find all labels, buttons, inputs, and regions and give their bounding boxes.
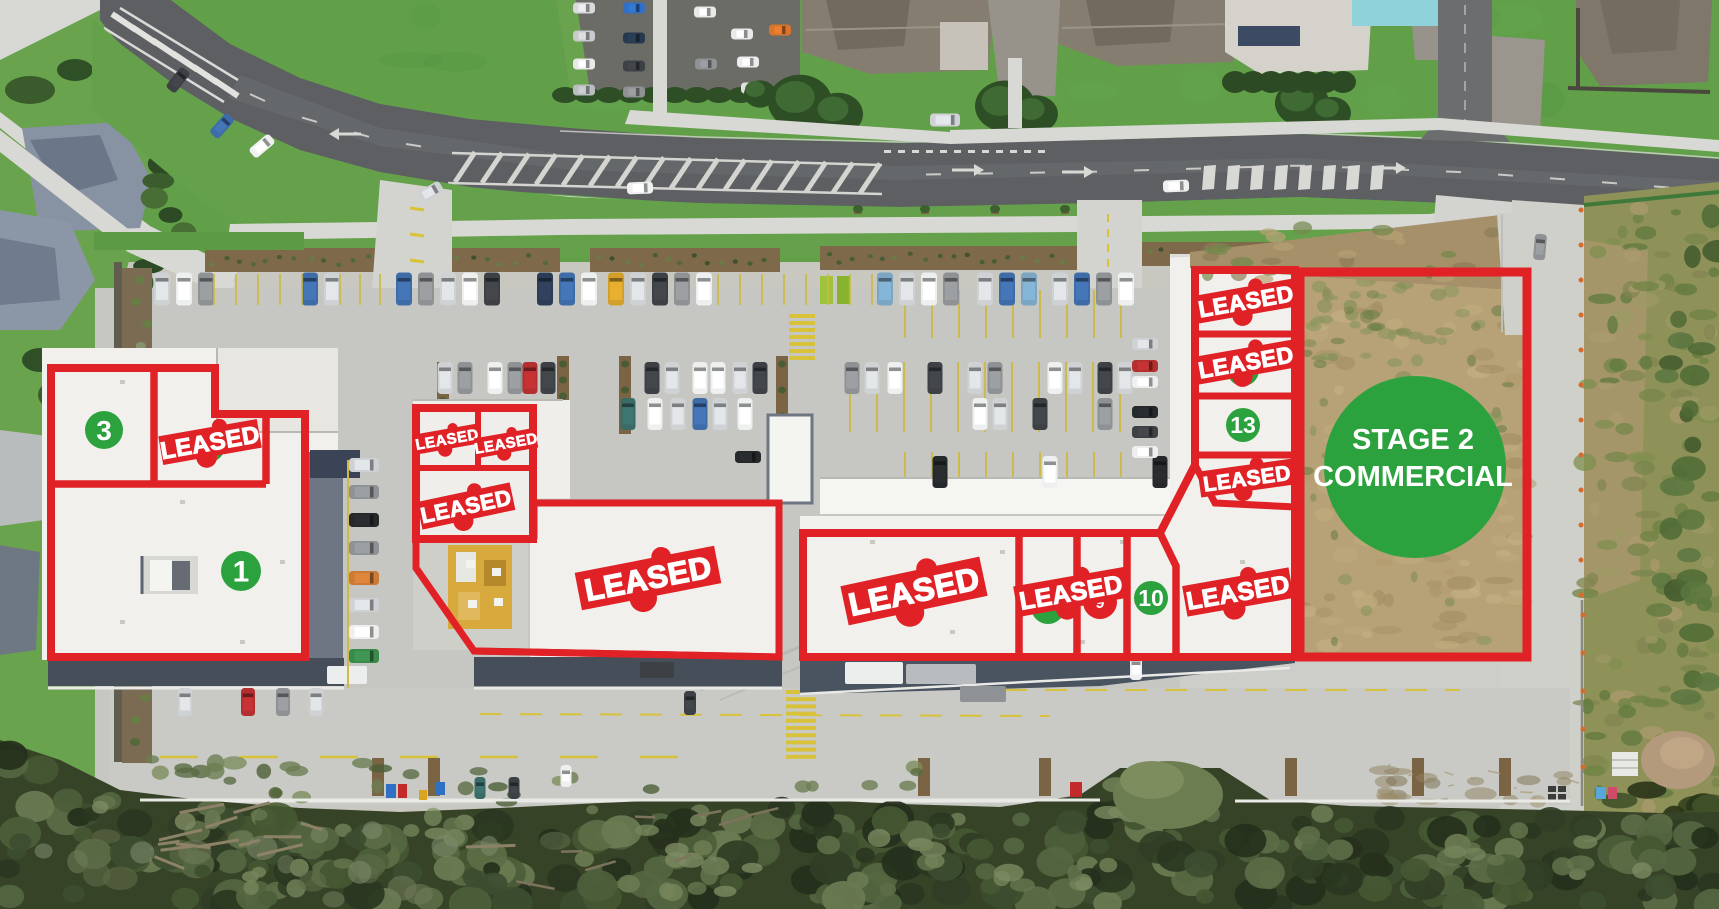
svg-text:13: 13	[1230, 412, 1256, 438]
svg-text:10: 10	[1138, 585, 1164, 611]
svg-text:1: 1	[233, 556, 250, 589]
svg-text:STAGE 2: STAGE 2	[1352, 424, 1474, 456]
svg-text:3: 3	[96, 415, 112, 446]
svg-text:COMMERCIAL: COMMERCIAL	[1313, 461, 1513, 493]
